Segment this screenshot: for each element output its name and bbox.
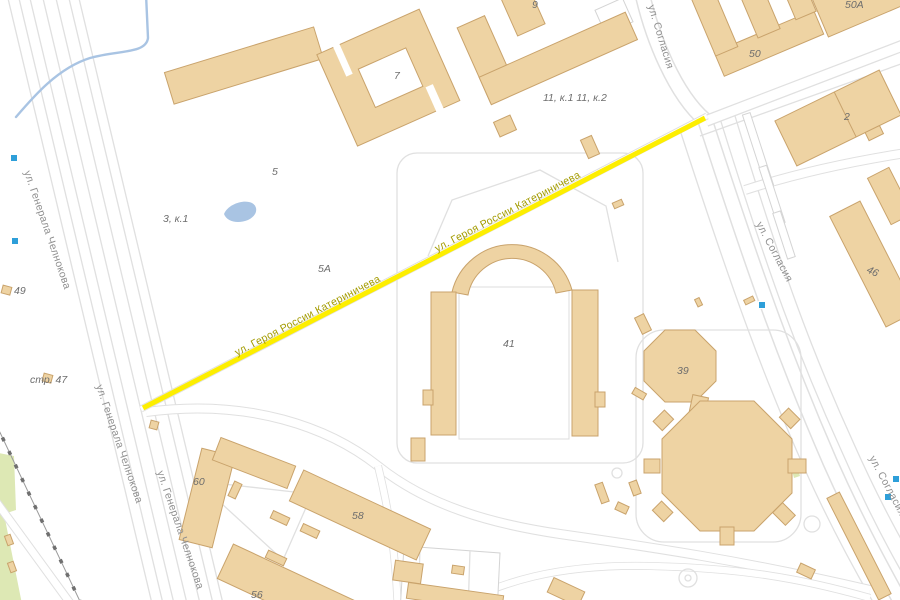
label-building-58: 58 <box>352 510 364 522</box>
label-building-41: 41 <box>503 338 515 350</box>
house-icon <box>1 285 12 295</box>
label-building-9: 9 <box>532 0 538 11</box>
street-label-chelnokova: ул. Генерала Челнокова <box>21 169 73 291</box>
transit-stop-marker <box>12 238 19 245</box>
label-building-5a: 5А <box>318 263 331 275</box>
street-label-katerinicheva: ул. Героя России Катериничева <box>233 273 383 359</box>
label-building-50a: 50А <box>845 0 864 11</box>
route-highlight-line <box>143 118 705 408</box>
transit-stop-marker <box>759 302 766 309</box>
label-building-39: 39 <box>677 365 689 377</box>
stadium-field <box>459 287 569 439</box>
street-label-chelnokova: ул. Генерала Челнокова <box>93 383 145 505</box>
building-7[interactable] <box>315 6 461 150</box>
label-building-56: 56 <box>251 589 263 600</box>
transit-stop-marker <box>893 476 900 483</box>
street-label-katerinicheva: ул. Героя России Катериничева <box>433 169 583 255</box>
stadium-west-stand <box>431 292 456 435</box>
label-building-11: 11, к.1 11, к.2 <box>543 92 607 104</box>
label-building-5: 5 <box>272 166 278 178</box>
building-39[interactable] <box>632 330 806 545</box>
transit-stop-marker <box>11 155 18 162</box>
label-building-3k1: 3, к.1 <box>163 213 188 225</box>
building-50[interactable] <box>685 0 826 76</box>
label-building-49: 49 <box>14 285 26 297</box>
stadium-east-stand <box>572 290 598 436</box>
pond <box>224 202 256 222</box>
label-building-60: 60 <box>193 476 205 488</box>
map-canvas[interactable]: ул. Генерала Челнокова ул. Генерала Челн… <box>0 0 900 600</box>
stream <box>16 0 148 117</box>
building-bar-right[interactable] <box>868 167 900 224</box>
label-building-7: 7 <box>394 70 401 82</box>
highlighted-street-katerinicheva[interactable] <box>141 116 707 409</box>
label-building-47: стр. 47 <box>30 374 68 386</box>
building-bar-topleft[interactable] <box>164 27 323 104</box>
label-building-50: 50 <box>749 48 761 60</box>
street-label-soglasiya: ул. Согласия <box>866 454 900 518</box>
label-building-2: 2 <box>843 111 850 123</box>
